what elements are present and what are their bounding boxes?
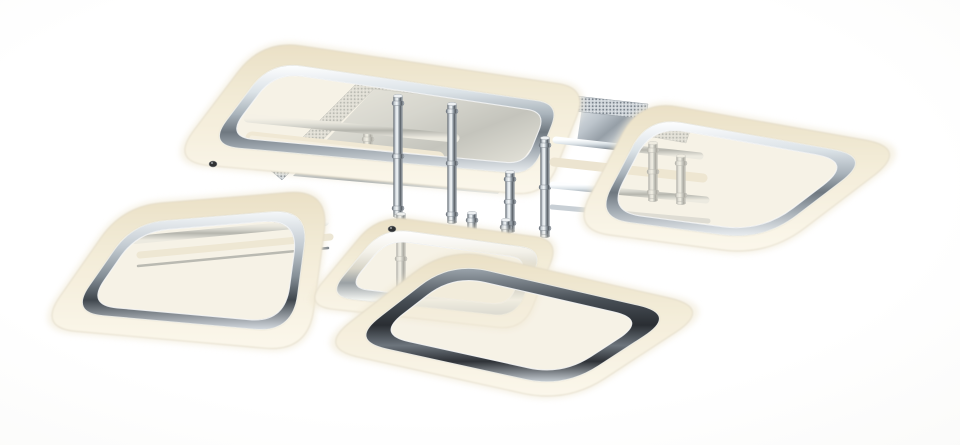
- ceiling-lamp-illustration: [0, 0, 960, 445]
- product-photo: LED ceiling chandelier: [0, 0, 960, 445]
- chrome-post: [539, 136, 551, 237]
- chrome-post: [392, 94, 404, 217]
- post-top-cap: [505, 170, 514, 173]
- post-collar: [392, 101, 404, 106]
- screw-cap: [209, 161, 217, 167]
- post-collar: [446, 109, 458, 114]
- post-top-cap: [501, 218, 510, 221]
- post-top-cap: [447, 102, 456, 105]
- screw-cap-highlight: [211, 162, 213, 164]
- post-collar: [392, 154, 404, 159]
- post-top-cap: [396, 212, 405, 215]
- post-top-cap: [467, 211, 476, 214]
- post-collar: [539, 185, 551, 190]
- screw-cap-highlight: [390, 227, 392, 229]
- post-collar: [446, 161, 458, 166]
- post-collar: [504, 177, 516, 182]
- post-top-cap: [540, 136, 549, 139]
- post-collar: [446, 212, 458, 217]
- post-collar: [500, 225, 512, 230]
- post-collar: [539, 226, 551, 231]
- post-collar: [504, 200, 516, 205]
- screw-cap: [388, 226, 396, 232]
- chrome-post: [446, 102, 458, 223]
- post-top-cap: [393, 94, 402, 97]
- post-collar: [466, 218, 478, 223]
- post-collar: [539, 143, 551, 148]
- post-collar: [392, 206, 404, 211]
